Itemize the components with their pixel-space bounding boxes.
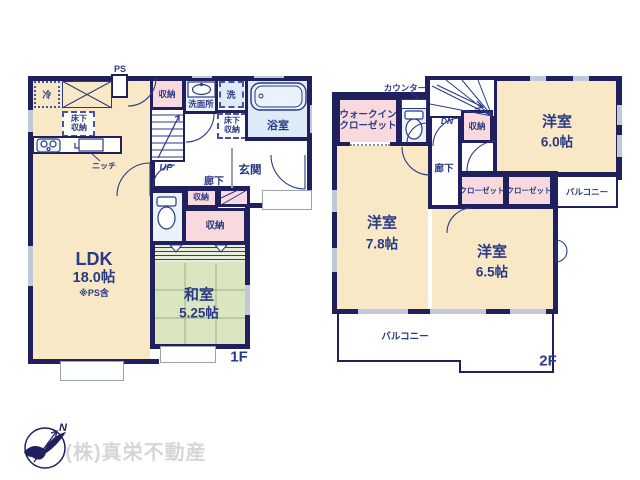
label-counter: カウンター [384, 84, 427, 94]
label-floor-1f: 1F [230, 350, 248, 367]
label-ldk: LDK [76, 249, 113, 269]
label-bedroom-c-size: 6.5帖 [476, 264, 508, 279]
floorplan-canvas: N PS 冷 床下収納 収納 洗面所 洗 床下収納 浴室 UP 廊下 玄関 収納… [0, 0, 640, 480]
entrance-threshold [231, 148, 233, 188]
label-bedroom-c: 洋室 [477, 245, 507, 262]
label-washitsu-size: 5.25帖 [179, 305, 219, 320]
label-dn: DN [441, 117, 453, 127]
label-bedroom-a: 洋室 [542, 115, 572, 132]
label-bedroom-a-size: 6.0帖 [541, 134, 573, 149]
window-2f-top-b [573, 76, 589, 81]
window-2f-bottom-c [510, 309, 546, 314]
kitchen-counter [32, 136, 122, 154]
entrance-step-inner [218, 188, 250, 207]
label-ldk-size: 18.0帖 [73, 270, 116, 286]
label-up: UP [159, 164, 172, 175]
label-balcony-side: バルコニー [566, 188, 608, 198]
counter-box [401, 99, 427, 109]
label-washitsu: 和室 [184, 288, 214, 305]
label-walk-in-closet: ウォークインクローゼット [339, 110, 397, 131]
label-underfloor-hall: 床下収納 [221, 117, 243, 135]
label-bedroom-b-size: 7.8帖 [366, 236, 398, 251]
label-storage-2f: 収納 [468, 122, 485, 132]
window-1f-left-ldk [28, 246, 33, 286]
window-2f-bottom-a [358, 309, 408, 314]
window-2f-left-a [332, 190, 337, 212]
window-2f-right-a [617, 105, 622, 125]
label-closet-b: クローゼット [507, 187, 552, 195]
window-1f-left-kitchen [28, 110, 33, 132]
label-storage-small: 収納 [193, 194, 209, 203]
label-closet-a: クローゼット [460, 187, 505, 195]
label-washroom: 洗面所 [188, 100, 214, 110]
window-2f-bottom-b [430, 309, 486, 314]
wall-2f-right-bedroom-a [616, 76, 622, 180]
stairs-1f-box [150, 108, 185, 162]
toilet-1f-box [150, 190, 185, 244]
label-washer: 洗 [226, 90, 235, 100]
balcony-main-rail [338, 314, 553, 372]
window-2f-top-a [530, 76, 546, 81]
label-bathroom: 浴室 [267, 120, 289, 132]
label-fridge: 冷 [42, 90, 51, 100]
company-name: (株)真栄不動産 [65, 442, 206, 464]
window-box-washitsu-south [160, 346, 216, 363]
window-box-ldk-south [60, 361, 124, 381]
label-entrance: 玄関 [239, 165, 262, 178]
label-ps: PS [114, 64, 126, 74]
label-niche: ニッチ [92, 163, 116, 172]
ps-shaft [111, 74, 128, 98]
window-1f-washitsu-right [245, 285, 250, 315]
label-underfloor-kitchen: 床下収納 [68, 115, 90, 133]
entrance-porch-step [262, 190, 312, 210]
label-floor-2f: 2F [539, 354, 557, 371]
washitsu-closet-strip [155, 244, 245, 262]
label-balcony-main: バルコニー [381, 333, 428, 344]
label-bedroom-b: 洋室 [367, 216, 397, 233]
window-2f-left-b [332, 248, 337, 272]
label-ldk-note: ※PS含 [79, 288, 109, 298]
label-hallway-2f: 廊下 [434, 165, 453, 176]
label-storage-stairs: 収納 [158, 90, 175, 100]
kitchen-x-storage [62, 81, 112, 108]
window-2f-right-b [617, 135, 622, 157]
label-hallway-1f: 廊下 [204, 176, 224, 187]
label-storage-hall: 収納 [205, 222, 224, 233]
compass-icon: N [24, 422, 68, 468]
compass-north-label: N [59, 422, 68, 434]
wic-sliding-opening [350, 142, 390, 146]
